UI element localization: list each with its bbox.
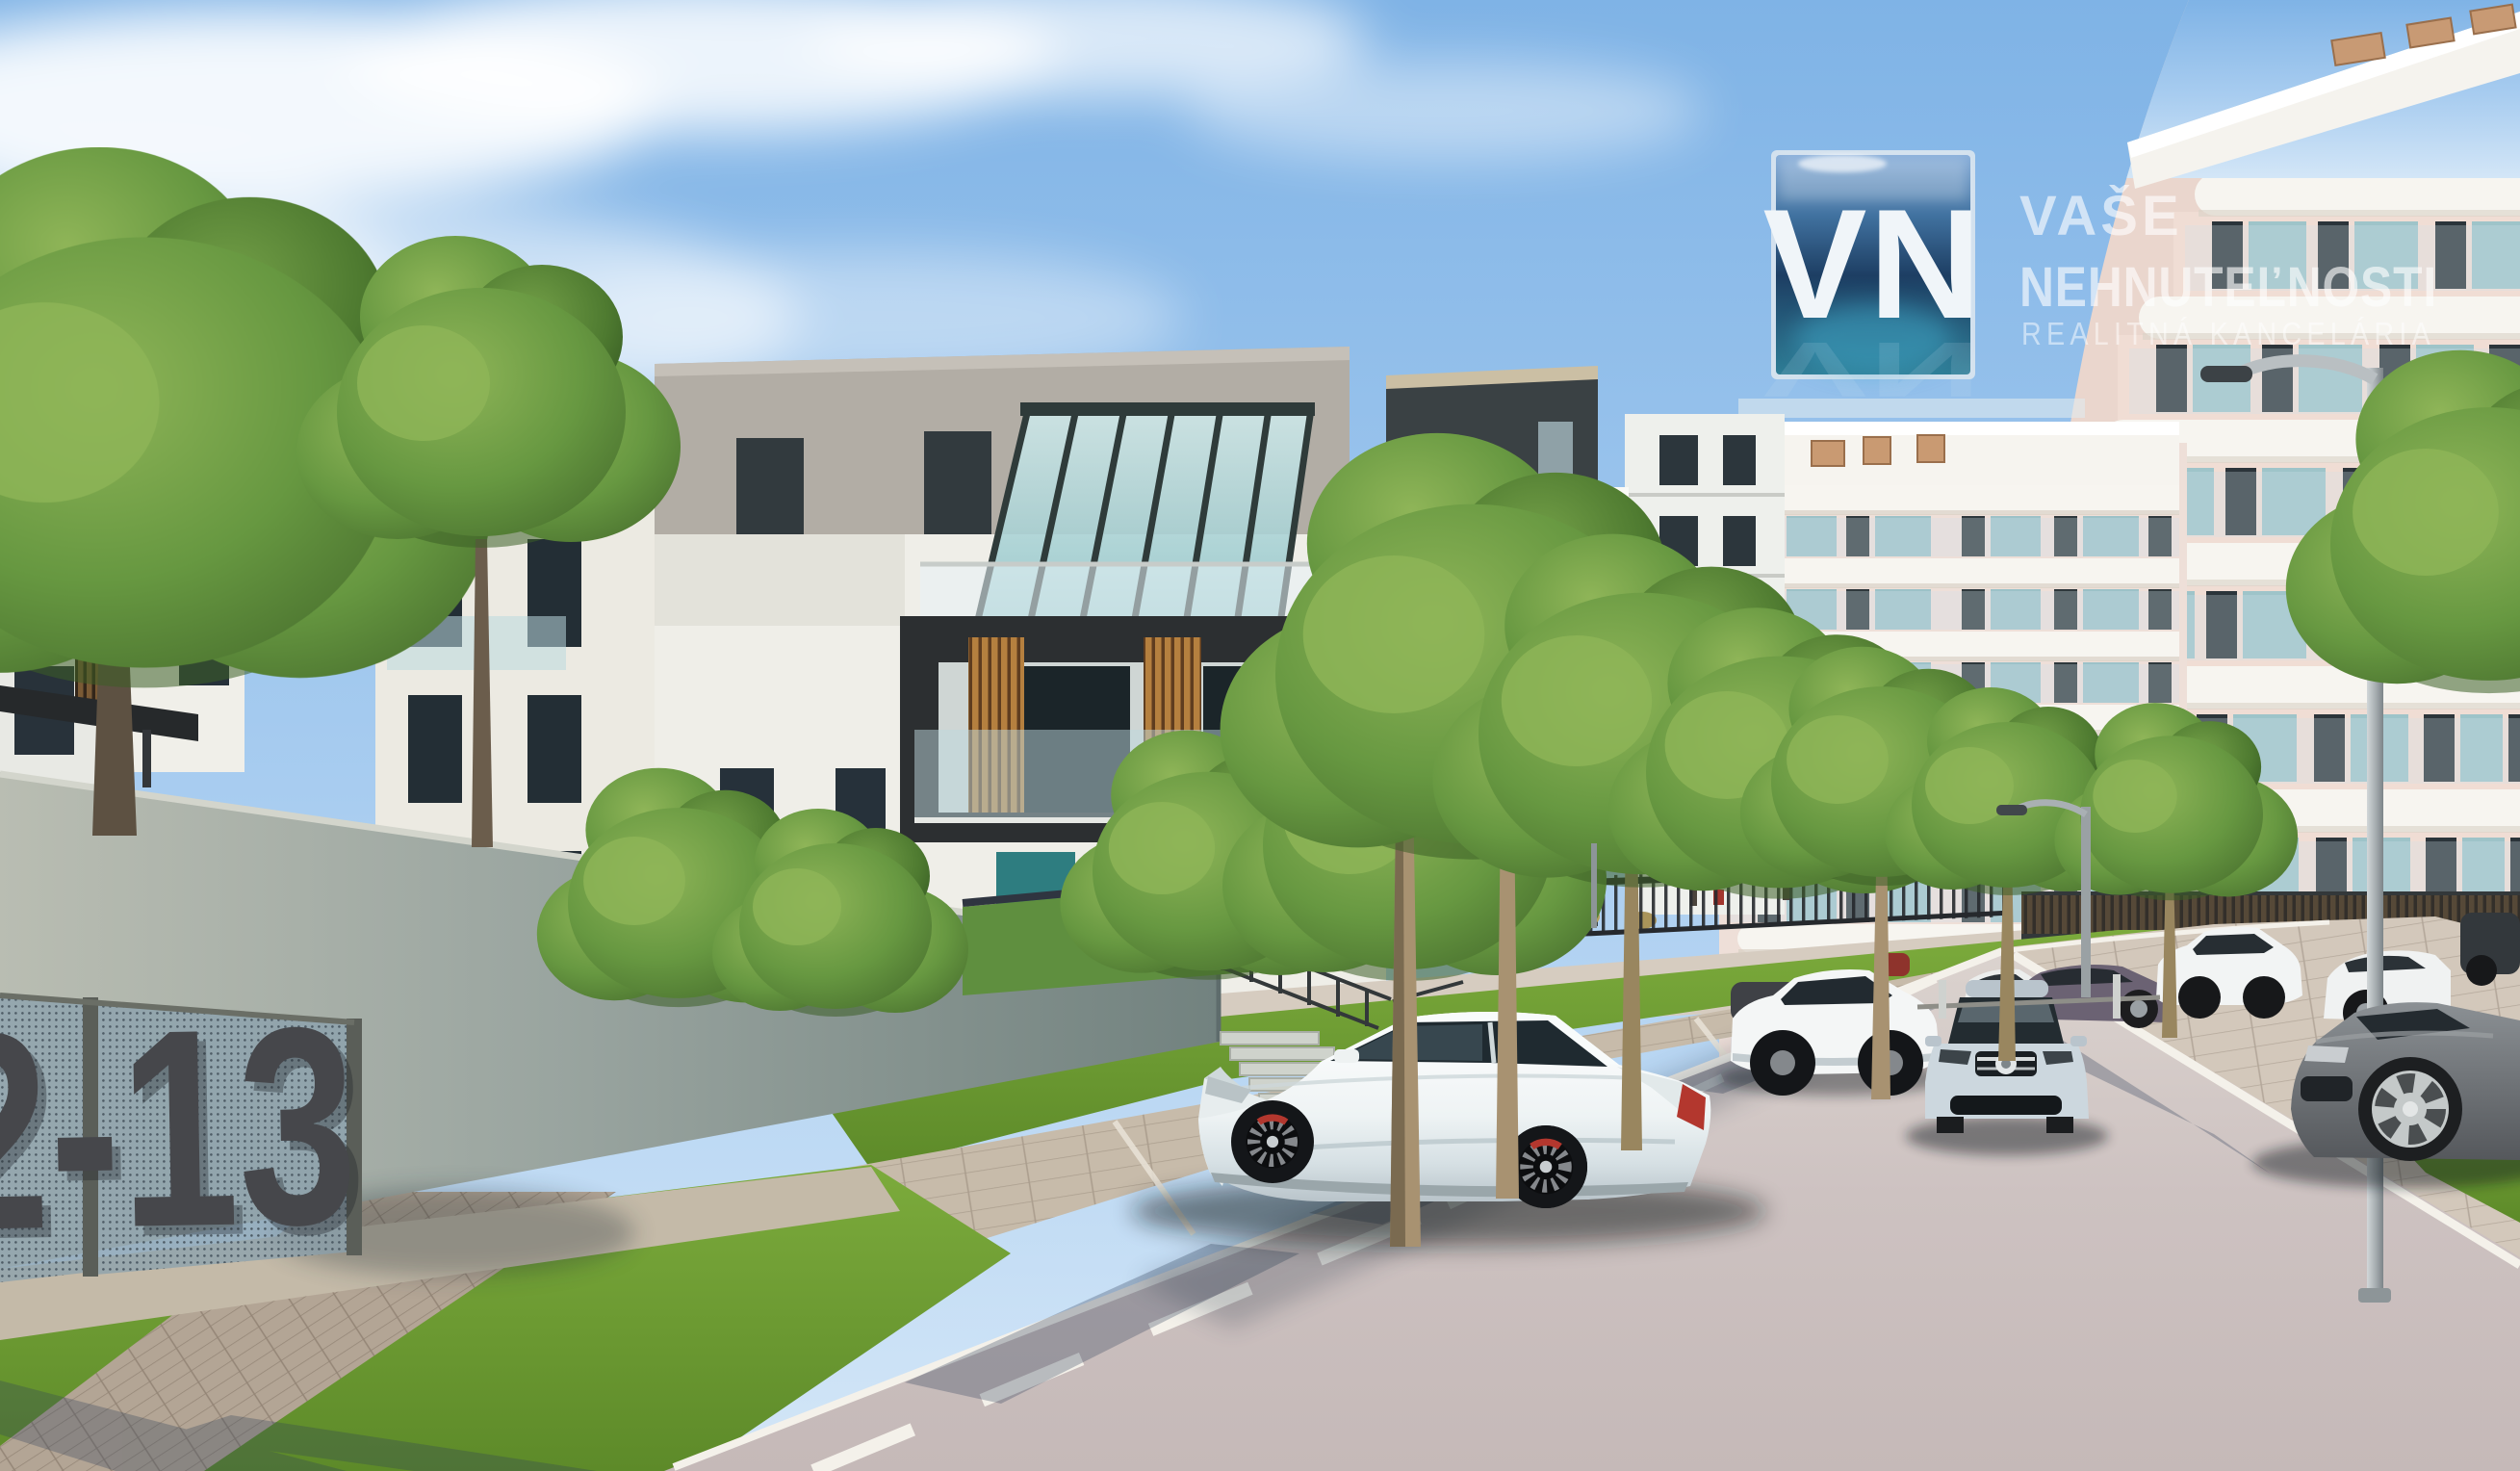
wall-sign-number: 2-13	[0, 968, 359, 1290]
logo-tile: VN VN	[1762, 150, 1983, 413]
watermark-line3: REALITNÁ KANCELÁRIA	[2021, 316, 2435, 351]
architectural-render: 2-13 2-13	[0, 0, 2520, 1471]
terrace-balustrade	[920, 564, 1348, 624]
logo-reflection: VN	[1762, 325, 1983, 412]
watermark-line1: VAŠE	[2019, 185, 2183, 247]
scene-canvas: 2-13 2-13	[0, 0, 2520, 1471]
wall-sign: 2-13 2-13	[0, 968, 368, 1299]
logo-initials: VN	[1762, 177, 1983, 351]
watermark-line2: NEHNUTEĽNOSTI	[2019, 256, 2437, 319]
